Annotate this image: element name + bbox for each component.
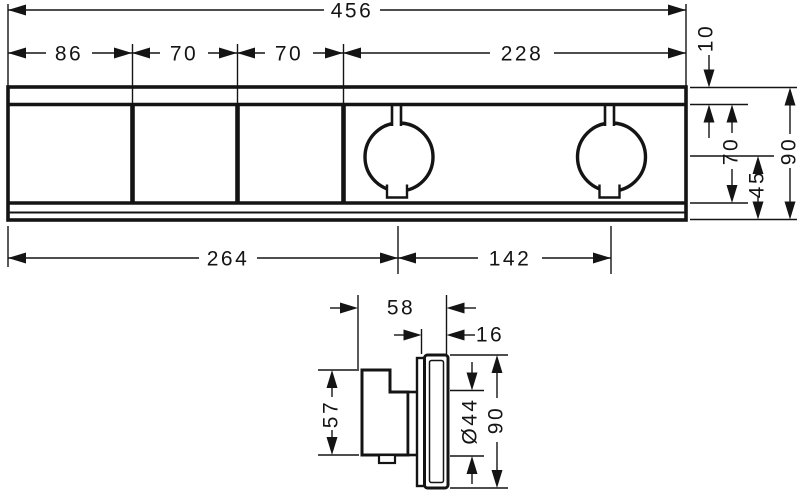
dim-width-total: 456 (8, 0, 686, 23)
dim-center-to-bottom-label: 45 (746, 170, 769, 198)
dim-height-total-label: 90 (778, 137, 800, 165)
dim-seg4-label: 228 (501, 43, 544, 66)
dim-height-total: 90 (778, 88, 800, 220)
dim-center-to-bottom: 45 (746, 156, 769, 220)
dim-offset-top: 10 (695, 24, 718, 138)
drawing-svg: 456 86 70 70 228 (0, 0, 800, 492)
dim-width-total-label: 456 (331, 0, 374, 23)
dim-trim-depth-label: 16 (476, 324, 504, 347)
dim-offset-top-label: 10 (695, 24, 718, 52)
dim-trim-height-label: 90 (485, 406, 508, 434)
dim-handle-center-spacing-label: 142 (489, 248, 532, 271)
dim-handle-diameter-label: Ø44 (459, 397, 482, 444)
dim-height-inner: 70 (720, 105, 743, 204)
dim-body-height: 57 (320, 370, 343, 455)
handle-left-tab (387, 185, 407, 198)
dim-trim-height: 90 (485, 355, 508, 488)
dim-seg1-label: 86 (55, 43, 83, 66)
dim-depth-total-label: 58 (387, 297, 415, 320)
dim-trim-depth: 16 (394, 324, 504, 347)
dim-body-height-label: 57 (320, 400, 343, 428)
valve-body-tab (379, 455, 395, 463)
valve-body (362, 370, 408, 455)
dim-left-to-handle-center-label: 264 (207, 248, 250, 271)
dim-depth-total: 58 (330, 297, 476, 320)
dim-left-to-handle-center: 264 (8, 248, 398, 271)
dim-seg3-label: 70 (275, 43, 303, 66)
dim-handle-diameter: Ø44 (459, 362, 482, 484)
technical-drawing: 456 86 70 70 228 (0, 0, 800, 492)
dim-seg2-label: 70 (170, 43, 198, 66)
handle-right-tab (600, 185, 620, 198)
escutcheon (425, 355, 449, 488)
front-view-drawing: 456 86 70 70 228 (8, 0, 800, 274)
dim-width-segments: 86 70 70 228 (8, 43, 686, 66)
dim-handle-center-spacing: 142 (398, 248, 611, 271)
side-view-drawing: 58 16 57 Ø44 (318, 295, 508, 488)
dim-height-inner-label: 70 (720, 137, 743, 165)
